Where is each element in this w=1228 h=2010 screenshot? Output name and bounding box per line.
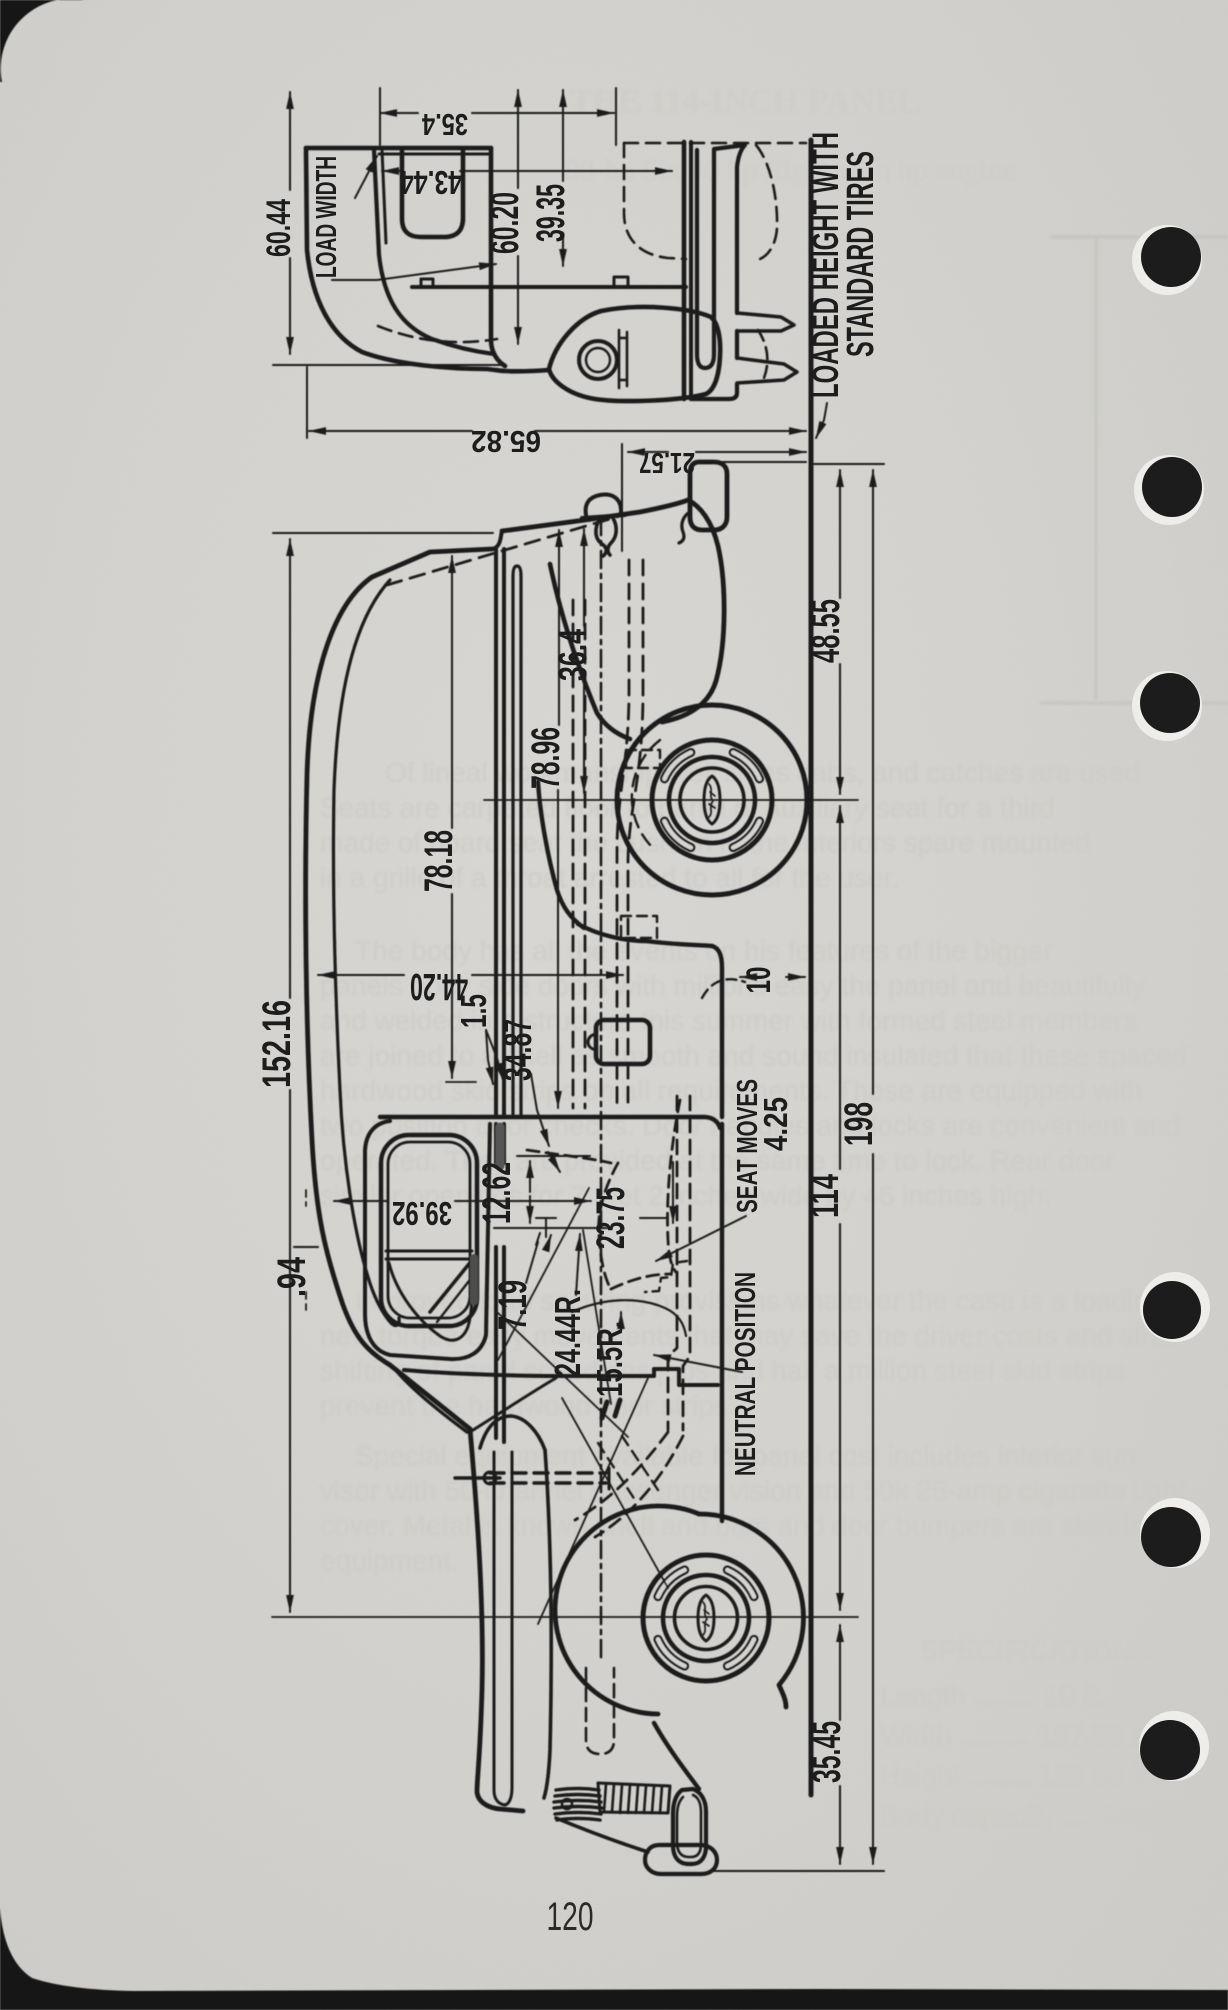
svg-text:65.82: 65.82 xyxy=(471,424,541,459)
svg-text:Height ........ 155 cu ft.: Height ........ 155 cu ft. xyxy=(880,1760,1154,1791)
svg-text:120: 120 xyxy=(547,1895,594,1939)
svg-text:21.57: 21.57 xyxy=(639,446,695,478)
svg-text:34.87: 34.87 xyxy=(496,1019,540,1081)
svg-text:4.25: 4.25 xyxy=(757,1097,794,1151)
svg-text:24.44R.: 24.44R. xyxy=(547,1289,588,1377)
svg-text:.94: .94 xyxy=(270,1256,314,1297)
svg-text:39.35: 39.35 xyxy=(529,184,573,242)
svg-text:equipment.: equipment. xyxy=(320,1545,459,1576)
svg-text:STANDARD TIRES: STANDARD TIRES xyxy=(840,151,882,357)
svg-text:35.45: 35.45 xyxy=(805,1721,849,1783)
svg-text:60.44: 60.44 xyxy=(260,199,298,257)
svg-text:78.18: 78.18 xyxy=(417,830,461,892)
svg-text:78.96: 78.96 xyxy=(524,727,568,789)
svg-text:LOAD WIDTH: LOAD WIDTH xyxy=(311,156,343,278)
svg-text:NEUTRAL POSITION: NEUTRAL POSITION xyxy=(730,1272,762,1476)
svg-text:114: 114 xyxy=(803,1173,847,1218)
svg-text:35.4: 35.4 xyxy=(421,107,468,142)
svg-text:198: 198 xyxy=(837,1102,881,1146)
svg-text:152.16: 152.16 xyxy=(255,1000,299,1088)
svg-text:operated. They are provided: operated. They are provided at the same … xyxy=(320,1145,1115,1176)
svg-text:48.55: 48.55 xyxy=(804,599,848,663)
svg-text:60.20: 60.20 xyxy=(483,192,527,254)
svg-text:1.5: 1.5 xyxy=(453,994,494,1028)
svg-text:Improved load securing prov: Improved load securing provisions whatev… xyxy=(355,1285,1202,1316)
svg-text:10: 10 xyxy=(740,967,778,994)
svg-text:visor with 50-channel passe: visor with 50-channel passenger vision a… xyxy=(320,1475,1186,1506)
svg-text:Body capacity .... 183.6: Body capacity .... 183.6 xyxy=(880,1800,1171,1831)
svg-text:7.19: 7.19 xyxy=(491,1280,535,1330)
svg-text:and welded in a structure: and welded in a structure this summer wi… xyxy=(320,1005,1137,1036)
svg-text:23.75: 23.75 xyxy=(589,1187,633,1249)
svg-text:15.5R.: 15.5R. xyxy=(589,1321,630,1397)
svg-text:SPECIFICATIONS: SPECIFICATIONS xyxy=(920,1635,1151,1666)
svg-text:are joined to a shell as: are joined to a shell as smooth and soun… xyxy=(320,1040,1187,1071)
svg-text:39.92: 39.92 xyxy=(392,1195,452,1232)
svg-text:36.4: 36.4 xyxy=(551,629,595,681)
svg-text:THE 114-INCH PANEL: THE 114-INCH PANEL xyxy=(570,83,921,120)
svg-text:The body has all the even: The body has all the events on his featu… xyxy=(355,935,1052,966)
svg-text:43.44: 43.44 xyxy=(400,164,462,201)
svg-text:Length ........ 10 ft.: Length ........ 10 ft. xyxy=(880,1680,1106,1711)
svg-text:12.62: 12.62 xyxy=(475,1162,519,1224)
svg-text:Of lineal workmanship well: Of lineal workmanship well sides cabs, a… xyxy=(385,757,1140,788)
svg-text:Width ......... 157.56 in.: Width ......... 157.56 in. xyxy=(880,1720,1160,1751)
